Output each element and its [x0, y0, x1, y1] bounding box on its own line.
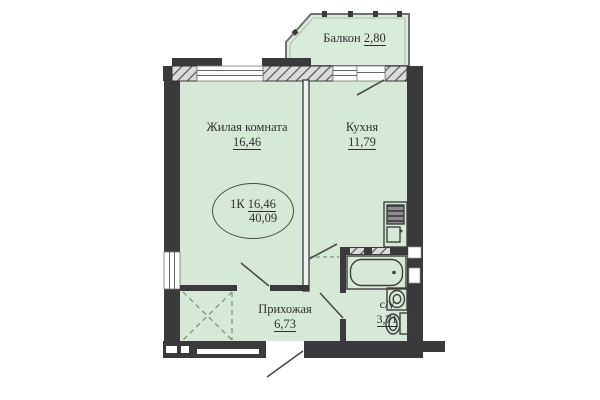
balcony-rail-tick — [322, 11, 327, 17]
living-kitchen-partition — [303, 80, 309, 291]
living-room-name: Жилая комната — [187, 120, 307, 135]
kitchen-window — [333, 66, 357, 81]
kitchen-label: Кухня 11,79 — [322, 120, 402, 150]
hall-partition-left — [180, 285, 237, 291]
kitchen-area: 11,79 — [348, 135, 376, 150]
balcony-area: 2,80 — [364, 31, 386, 46]
balcony-rail-tick — [348, 11, 353, 17]
apartment-type: 1К — [230, 197, 245, 211]
left-wall — [164, 66, 180, 352]
bathroom-name: с/у — [362, 297, 412, 312]
vent-shaft — [409, 268, 420, 283]
stamp-line1: 1К 16,46 — [230, 197, 276, 211]
stamp-living-area: 16,46 — [248, 197, 276, 212]
bathroom-area: 3,71 — [377, 312, 398, 327]
balcony-rail-tick — [373, 11, 378, 17]
bathroom-label: с/у 3,71 — [362, 297, 412, 327]
living-room-label: Жилая комната 16,46 — [187, 120, 307, 150]
bathroom-top-wall-hatch — [372, 248, 390, 254]
hallway-area: 6,73 — [274, 317, 296, 332]
balcony-rail-tick — [397, 11, 402, 17]
bathroom-left-wall-lower — [340, 319, 346, 342]
stamp-total-area: 40,09 — [249, 211, 277, 225]
balcony-name: Балкон — [323, 31, 360, 45]
vent-shaft — [408, 247, 421, 258]
balcony-label: Балкон 2,80 — [302, 31, 407, 46]
bottom-wall-stub — [423, 341, 445, 352]
floor-plan-drawing — [0, 0, 600, 400]
bathroom-top-wall-hatch — [350, 248, 364, 254]
balcony-door-opening — [357, 66, 385, 81]
living-room-window — [197, 66, 263, 81]
hall-partition-right — [270, 285, 309, 291]
kitchen-name: Кухня — [322, 120, 402, 135]
hallway-name: Прихожая — [240, 302, 330, 317]
apartment-stamp: 1К 16,46 40,09 — [212, 183, 294, 239]
floor-plan: Балкон 2,80 Жилая комната 16,46 Кухня 11… — [0, 0, 600, 400]
entrance-opening — [266, 341, 304, 358]
left-wall-window — [164, 252, 180, 289]
hallway-label: Прихожая 6,73 — [240, 302, 330, 332]
living-room-area: 16,46 — [233, 135, 261, 150]
